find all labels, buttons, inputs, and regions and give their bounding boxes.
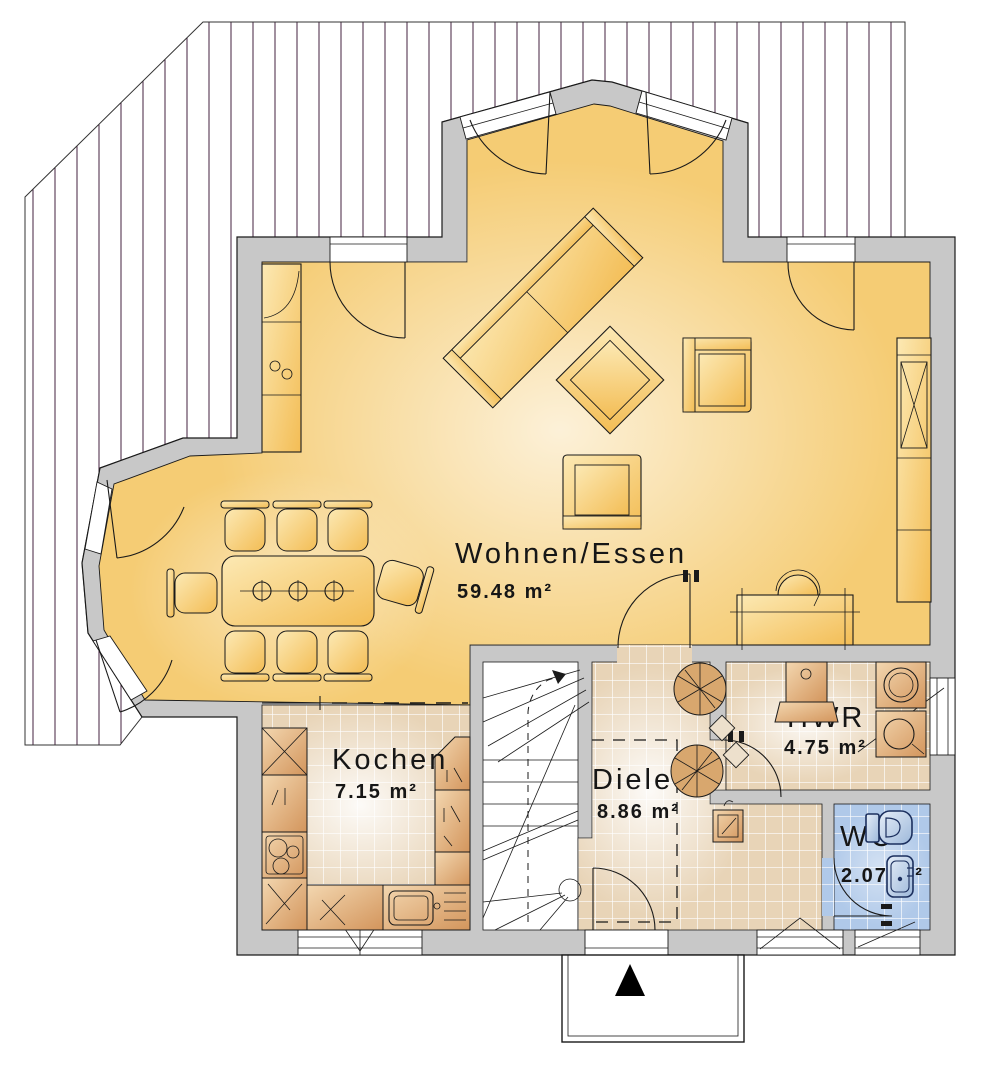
armchair-center xyxy=(563,455,641,529)
stove xyxy=(262,832,307,878)
sideboard-left-wall xyxy=(262,264,301,452)
shelf-cabinet-right-wall xyxy=(897,338,931,602)
area-wohnen-essen: 59.48 m² xyxy=(457,581,553,603)
label-kochen: Kochen xyxy=(332,744,448,776)
door-threshold-wohnen-diele xyxy=(617,645,692,664)
floorplan-page: Wohnen/Essen 59.48 m² Kochen 7.15 m² Die… xyxy=(0,0,1000,1076)
floorplan-drawing: Wohnen/Essen 59.48 m² Kochen 7.15 m² Die… xyxy=(0,0,1000,1076)
dining-table xyxy=(222,556,374,626)
wc-sink xyxy=(887,856,913,897)
area-kochen: 7.15 m² xyxy=(335,781,418,803)
door-threshold-wc xyxy=(822,858,834,916)
dryer xyxy=(876,711,926,757)
area-diele: 8.86 m² xyxy=(597,801,680,823)
kitchen-sink xyxy=(383,885,470,930)
washing-machine xyxy=(876,662,926,708)
label-wohnen-essen: Wohnen/Essen xyxy=(455,538,687,570)
toilet xyxy=(866,811,912,844)
stairwell-floor xyxy=(483,662,578,930)
armchair-right xyxy=(683,338,751,412)
area-hwr: 4.75 m² xyxy=(784,737,867,759)
label-diele: Diele xyxy=(592,764,673,796)
entrance-porch xyxy=(562,955,744,1042)
